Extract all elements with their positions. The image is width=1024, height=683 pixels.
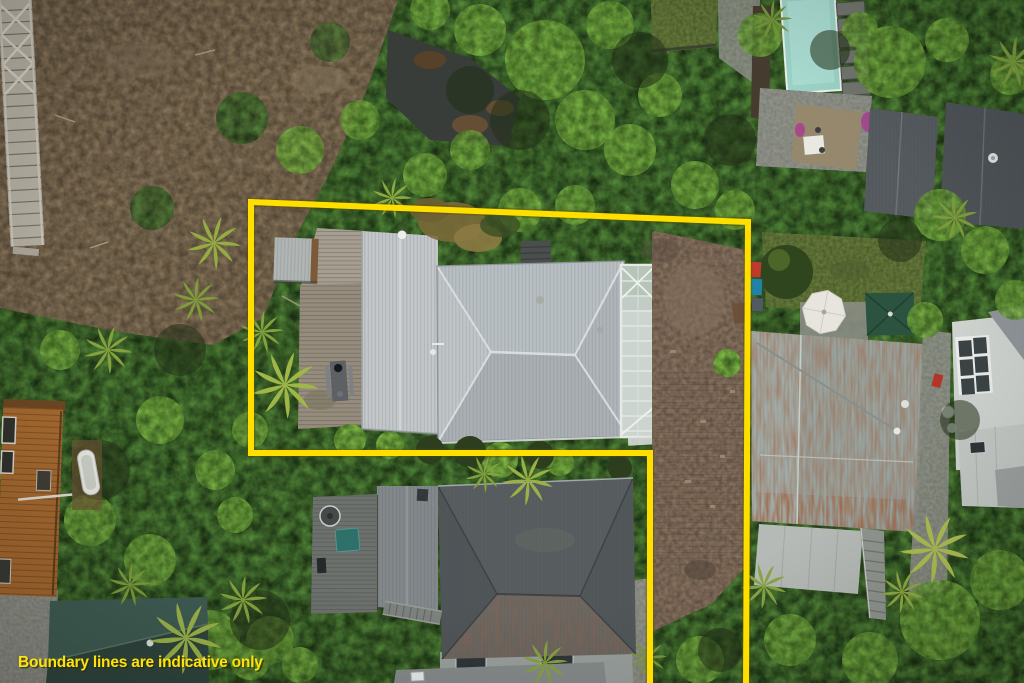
boundary-disclaimer-text: Boundary lines are indicative only <box>18 654 263 671</box>
vignette <box>0 0 1024 683</box>
aerial-photo: Boundary lines are indicative only Bound… <box>0 0 1024 683</box>
aerial-photo-canvas: Boundary lines are indicative only Bound… <box>0 0 1024 683</box>
boundary-disclaimer: Boundary lines are indicative only Bound… <box>18 654 265 673</box>
